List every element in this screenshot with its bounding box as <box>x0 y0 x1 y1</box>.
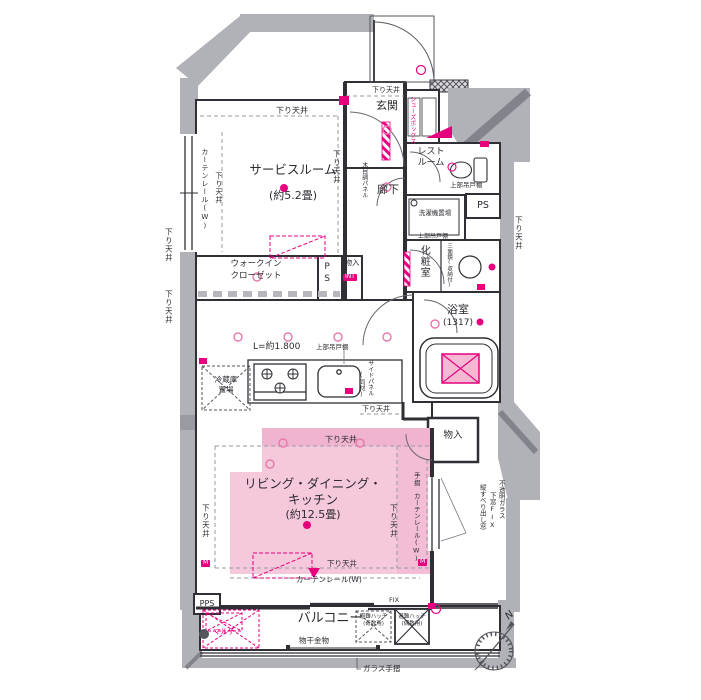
label-lowered-ceiling-right-out: 下り天井 <box>514 216 522 250</box>
label-laundry-hardware: 物干金物 <box>299 637 329 645</box>
floor-plan: 下り天井 下り天井 カーテンレール(W) 下り天井 サービスルーム (約5.2畳… <box>0 0 701 700</box>
label-lowered-ceiling-ldk-left: 下り天井 <box>201 504 209 538</box>
label-storage-hall-badge: INT <box>343 274 357 281</box>
label-upper-cabinet-restroom: 上部吊戸棚 <box>450 182 483 189</box>
floor-plan-drawing <box>0 0 701 700</box>
label-evac-hatch-even-2: (偶数用) <box>394 621 430 627</box>
label-hallway: 廊下 <box>377 184 399 196</box>
label-powder-room: 化粧室 <box>418 245 429 278</box>
label-restroom-line1: レスト <box>410 147 452 157</box>
label-casement-window: 縦すべり出し窓 <box>478 484 485 530</box>
label-curtain-rail-window: カーテンレール(W) <box>412 493 419 563</box>
label-storage-hall: 物入 <box>340 259 364 267</box>
stove-icon <box>254 364 306 400</box>
label-service-room-size: (約5.2畳) <box>240 190 346 202</box>
label-fridge-line2: 置場 <box>210 386 242 394</box>
label-shoe-box: シューズボックス <box>408 96 415 144</box>
label-lowered-ceiling-entrance: 下り天井 <box>372 87 400 95</box>
label-fridge-line1: 冷蔵庫 <box>210 376 242 384</box>
label-restroom-line2: ルーム <box>410 158 452 168</box>
label-pipe-space-wic: PS <box>322 262 332 286</box>
label-lowered-ceiling-ldk-bottom: 下り天井 <box>327 560 357 568</box>
label-evac-hatch-even-1: 避難ハッチ <box>394 614 430 620</box>
label-lowered-ceiling-left-out-1: 下り天井 <box>164 228 172 262</box>
label-upper-cabinet-kitchen: 上部吊戸棚 <box>316 344 349 351</box>
label-glass-handrail: ガラス手摺 <box>363 665 400 673</box>
label-wood-grain-panel: 木目調パネル <box>360 162 367 198</box>
label-multi-space: マルチ <box>213 628 236 636</box>
label-bathroom-size: (1317) <box>428 318 488 328</box>
label-lowered-ceiling-kitchen: 下り天井 <box>362 406 390 414</box>
label-evac-hatch-odd-2: (奇数用) <box>356 621 391 627</box>
label-entrance: 玄関 <box>376 100 398 112</box>
label-lowered-ceiling-left-out-2: 下り天井 <box>164 290 172 324</box>
label-curtain-rail-ldk: カーテンレール(W) <box>296 576 362 584</box>
label-curtain-rail-service: カーテンレール(W) <box>200 148 208 231</box>
label-lowered-ceiling-service-top: 下り天井 <box>276 107 308 116</box>
label-side-panel-note: (同材) <box>357 372 364 398</box>
drain-icon <box>199 629 209 639</box>
label-bathroom: 浴室 <box>428 304 488 316</box>
label-meter-2: M <box>418 559 427 566</box>
label-lower-fix: 下窓FIX <box>488 492 495 529</box>
label-pipe-space-right: PS <box>466 194 500 218</box>
label-storage-ldk: 物入 <box>428 431 478 442</box>
label-wic-line2: クローゼット <box>216 272 296 282</box>
label-side-panel: サイドパネル <box>366 360 373 396</box>
label-lowered-ceiling-ldk-top: 下り天井 <box>325 436 357 445</box>
label-meter-1: M <box>201 560 210 567</box>
label-service-room-name: サービスルーム <box>240 163 346 177</box>
label-lowered-ceiling-ldk-right: 下り天井 <box>389 504 397 538</box>
label-wic-line1: ウォークイン <box>216 260 296 270</box>
label-mirror-cabinet: 三面鏡(収納付) <box>446 243 452 288</box>
label-handrail: 手摺 <box>412 472 419 487</box>
label-ldk-line1: リビング・ダイニング・ <box>243 477 383 491</box>
label-fix-window: FIX <box>389 597 399 604</box>
label-opaque-glass: 不透明ガラス <box>497 480 504 519</box>
label-lowered-ceiling-service-left: 下り天井 <box>214 172 222 204</box>
label-kitchen-length: L=約1.800 <box>253 342 300 352</box>
label-ldk-size: (約12.5畳) <box>243 509 383 521</box>
label-evac-hatch-odd-1: 避難ハッチ <box>356 614 391 620</box>
label-ldk-line2: キッチン <box>243 493 383 507</box>
label-laundry-space: 洗濯機置場 <box>406 210 464 217</box>
label-pps: PPS <box>194 594 220 614</box>
label-upper-cabinet-powder: 上部吊戸棚 <box>418 234 448 241</box>
